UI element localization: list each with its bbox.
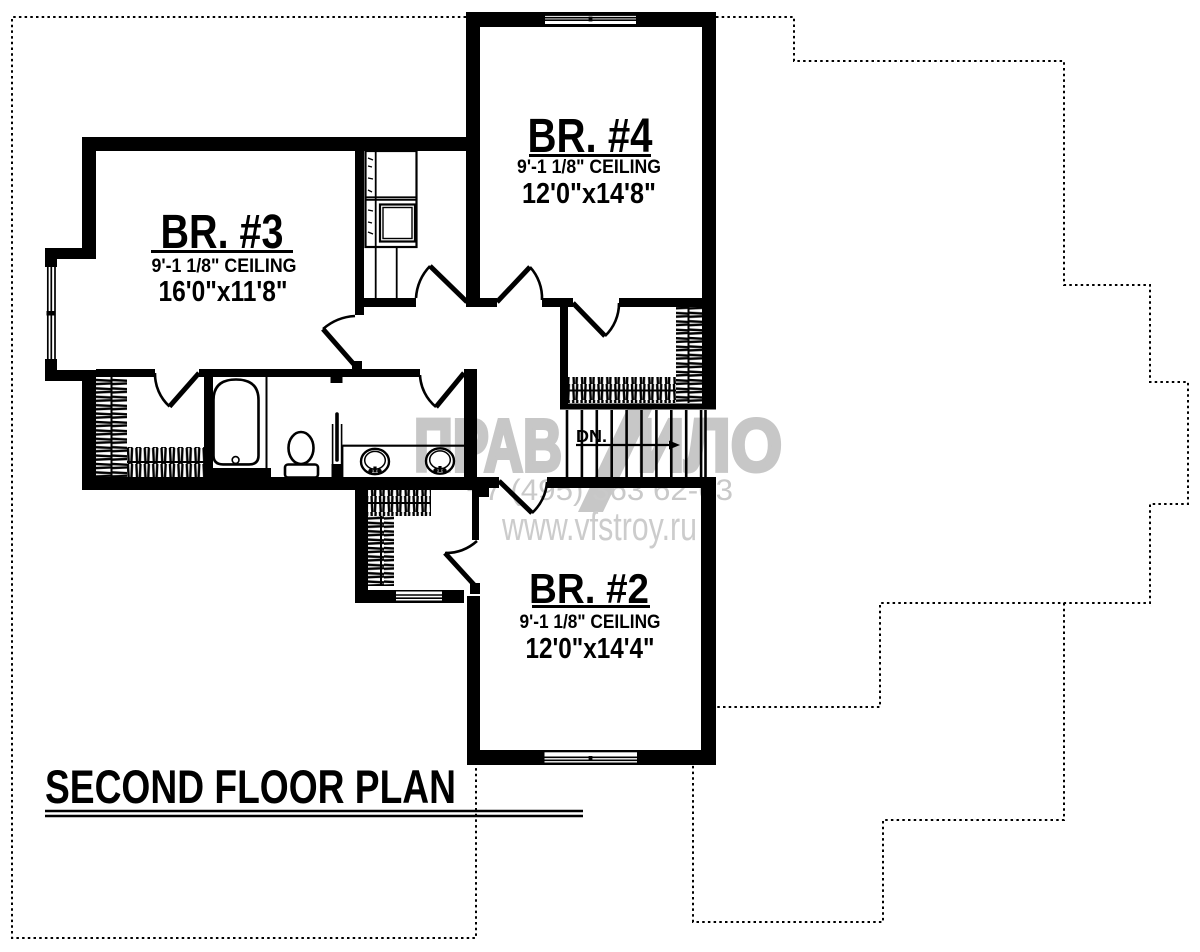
svg-text:SECOND FLOOR PLAN: SECOND FLOOR PLAN	[45, 760, 456, 813]
svg-text:12'0"x14'8": 12'0"x14'8"	[522, 178, 656, 210]
svg-text:9'-1 1/8" CEILING: 9'-1 1/8" CEILING	[520, 612, 661, 633]
svg-text:12'0"x14'4": 12'0"x14'4"	[526, 633, 655, 665]
svg-text:BR. #2: BR. #2	[529, 565, 649, 612]
svg-text:9'-1 1/8" CEILING: 9'-1 1/8" CEILING	[517, 157, 661, 178]
svg-text:16'0"x11'8": 16'0"x11'8"	[159, 276, 288, 308]
svg-text:9'-1 1/8" CEILING: 9'-1 1/8" CEILING	[152, 256, 297, 277]
svg-text:DN.: DN.	[576, 426, 607, 446]
